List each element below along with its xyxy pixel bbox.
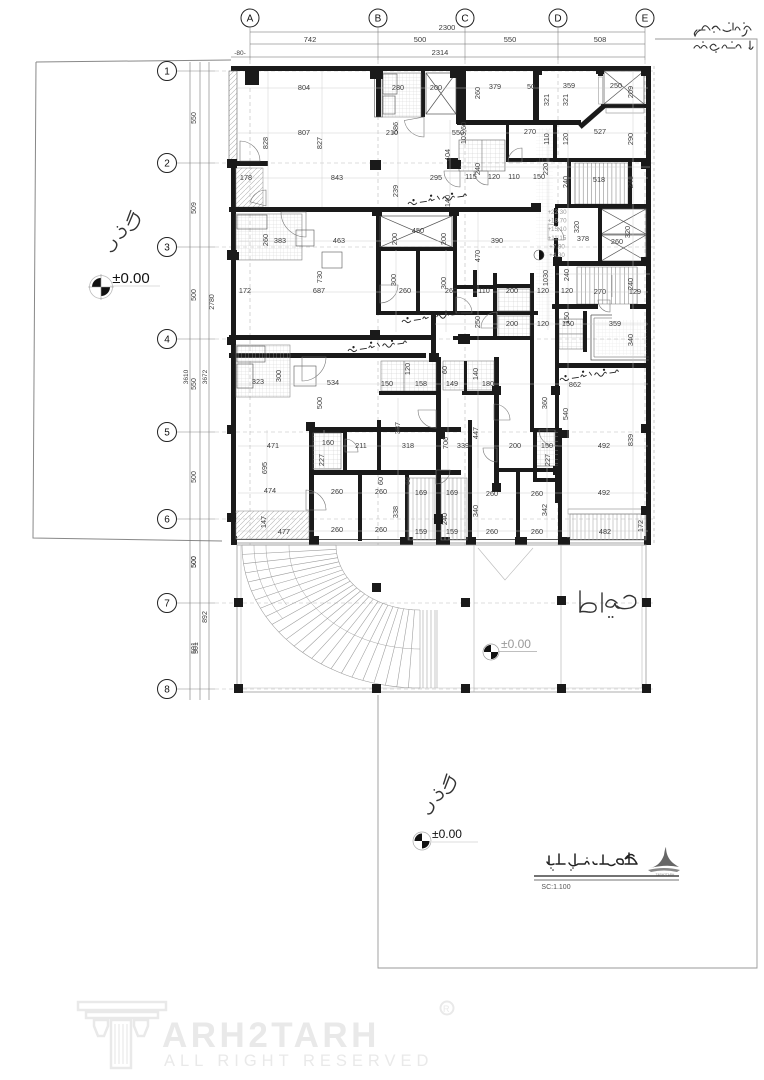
svg-text:260: 260 (331, 487, 343, 496)
svg-text:110: 110 (478, 286, 490, 295)
svg-text:260: 260 (531, 527, 543, 536)
svg-text:+18.70: +18.70 (547, 218, 567, 225)
svg-text:+22.30: +22.30 (547, 209, 567, 216)
svg-text:300: 300 (439, 277, 448, 289)
svg-text:492: 492 (598, 441, 610, 450)
svg-text:159: 159 (415, 527, 427, 536)
svg-text:2780: 2780 (209, 294, 216, 310)
svg-text:240: 240 (440, 513, 449, 525)
svg-text:D: D (554, 14, 561, 25)
svg-text:±0.00: ±0.00 (112, 270, 149, 287)
svg-text:742: 742 (304, 35, 317, 44)
svg-text:540: 540 (561, 408, 570, 420)
svg-text:482: 482 (599, 527, 611, 536)
svg-text:471: 471 (267, 441, 279, 450)
svg-text:320: 320 (623, 226, 632, 238)
svg-text:586: 586 (391, 122, 400, 134)
svg-text:804: 804 (298, 83, 310, 92)
svg-text:158: 158 (415, 379, 427, 388)
svg-text:807: 807 (298, 128, 310, 137)
svg-text:150: 150 (562, 312, 571, 324)
svg-text:120: 120 (537, 319, 549, 328)
svg-text:7: 7 (164, 599, 170, 610)
svg-text:843: 843 (331, 173, 343, 182)
svg-text:270: 270 (524, 127, 536, 136)
svg-text:2314: 2314 (432, 48, 449, 57)
svg-text:323: 323 (252, 377, 264, 386)
svg-text:200: 200 (509, 441, 521, 450)
svg-text:492: 492 (598, 488, 610, 497)
svg-text:447: 447 (471, 427, 480, 439)
svg-text:260: 260 (531, 489, 543, 498)
svg-text:260: 260 (375, 525, 387, 534)
svg-text:300: 300 (389, 274, 398, 286)
svg-text:892: 892 (202, 611, 209, 623)
svg-text:509: 509 (191, 202, 198, 214)
svg-text:342: 342 (540, 504, 549, 516)
svg-text:200: 200 (439, 233, 448, 245)
svg-text:E: E (642, 14, 649, 25)
svg-text:60: 60 (440, 366, 449, 374)
svg-text:250: 250 (473, 316, 482, 328)
svg-text:3610: 3610 (183, 369, 190, 384)
svg-text:828: 828 (261, 137, 270, 149)
svg-text:240: 240 (626, 278, 635, 290)
svg-text:527: 527 (594, 127, 606, 136)
svg-text:120: 120 (561, 133, 570, 145)
svg-text:110: 110 (508, 172, 520, 181)
svg-text:±0.00: ±0.00 (432, 827, 462, 841)
svg-text:470: 470 (473, 250, 482, 262)
svg-text:209: 209 (626, 86, 635, 98)
svg-text:687: 687 (313, 286, 325, 295)
svg-text:150: 150 (381, 379, 393, 388)
svg-text:220: 220 (541, 163, 550, 175)
svg-text:339: 339 (457, 441, 469, 450)
svg-text:360: 360 (540, 397, 549, 409)
svg-text:-80-: -80- (234, 50, 246, 57)
svg-text:500: 500 (191, 556, 198, 568)
svg-text:200: 200 (430, 83, 442, 92)
svg-text:508: 508 (594, 35, 607, 44)
svg-text:120: 120 (488, 172, 500, 181)
svg-text:501: 501 (193, 642, 200, 654)
svg-text:378: 378 (577, 234, 589, 243)
svg-text:321: 321 (542, 94, 551, 106)
svg-text:159: 159 (446, 527, 458, 536)
svg-text:450: 450 (412, 226, 424, 235)
svg-text:60: 60 (376, 477, 385, 485)
svg-text:550: 550 (191, 112, 198, 124)
svg-text:2: 2 (164, 159, 170, 170)
svg-text:290: 290 (626, 133, 635, 145)
svg-text:500: 500 (191, 289, 198, 301)
svg-text:1: 1 (164, 67, 170, 78)
svg-text:359: 359 (563, 81, 575, 90)
svg-text:260: 260 (486, 527, 498, 536)
svg-text:3: 3 (164, 243, 170, 254)
svg-text:320: 320 (572, 221, 581, 233)
svg-text:160: 160 (322, 438, 334, 447)
svg-text:239: 239 (391, 185, 400, 197)
svg-text:295: 295 (430, 173, 442, 182)
svg-text:R: R (443, 1004, 450, 1014)
svg-text:50: 50 (527, 82, 535, 91)
svg-text:A: A (247, 14, 254, 25)
svg-text:260: 260 (399, 286, 411, 295)
svg-text:SC:1.100: SC:1.100 (541, 884, 570, 891)
svg-text:340: 340 (471, 505, 480, 517)
svg-text:3672: 3672 (202, 369, 209, 384)
svg-text:178: 178 (240, 173, 252, 182)
svg-text:550: 550 (191, 378, 198, 390)
svg-text:C: C (461, 14, 468, 25)
svg-text:4: 4 (164, 335, 170, 346)
svg-text:8: 8 (164, 685, 170, 696)
svg-text:321: 321 (561, 94, 570, 106)
svg-text:1030: 1030 (541, 270, 550, 286)
svg-text:695: 695 (260, 462, 269, 474)
svg-text:862: 862 (569, 380, 581, 389)
svg-text:ARH2TARH: ARH2TARH (162, 1016, 380, 1055)
svg-text:260: 260 (473, 87, 482, 99)
svg-text:534: 534 (327, 378, 339, 387)
svg-text:103,60: 103,60 (459, 122, 468, 144)
svg-text:250: 250 (610, 81, 622, 90)
svg-text:147: 147 (259, 516, 268, 528)
svg-text:240: 240 (626, 176, 635, 188)
svg-text:172: 172 (636, 520, 645, 532)
svg-text:270: 270 (594, 287, 606, 296)
svg-text:260: 260 (331, 525, 343, 534)
svg-text:120: 120 (537, 286, 549, 295)
svg-text:5: 5 (164, 428, 170, 439)
svg-text:474: 474 (264, 486, 276, 495)
svg-text:338: 338 (391, 506, 400, 518)
svg-text:706: 706 (441, 437, 450, 449)
svg-text:172: 172 (239, 286, 251, 295)
svg-text:260: 260 (611, 237, 623, 246)
svg-text:477: 477 (278, 527, 290, 536)
svg-text:383: 383 (274, 236, 286, 245)
svg-text:318: 318 (402, 441, 414, 450)
svg-text:B: B (375, 14, 382, 25)
svg-text:140: 140 (471, 368, 480, 380)
svg-text:260: 260 (375, 487, 387, 496)
svg-text:518: 518 (593, 175, 605, 184)
svg-text:500: 500 (191, 471, 198, 483)
svg-text:340: 340 (626, 334, 635, 346)
svg-text:+7.90: +7.90 (549, 243, 565, 250)
svg-text:169: 169 (415, 488, 427, 497)
svg-text:550: 550 (504, 35, 517, 44)
svg-text:500: 500 (414, 35, 427, 44)
svg-text:300: 300 (274, 370, 283, 382)
svg-text:390: 390 (491, 236, 503, 245)
svg-text:827: 827 (315, 137, 324, 149)
svg-text:169: 169 (446, 488, 458, 497)
svg-text:120: 120 (561, 286, 573, 295)
svg-text:180: 180 (482, 379, 494, 388)
svg-text:150: 150 (541, 441, 553, 450)
svg-text:2300: 2300 (439, 23, 456, 32)
svg-text:463: 463 (333, 236, 345, 245)
svg-text:60: 60 (403, 477, 412, 485)
svg-text:839: 839 (626, 434, 635, 446)
svg-text:500: 500 (315, 397, 324, 409)
svg-text:120: 120 (403, 363, 412, 375)
svg-text:200: 200 (506, 286, 518, 295)
svg-text:260: 260 (486, 489, 498, 498)
svg-text:227: 227 (317, 454, 326, 466)
svg-text:730: 730 (315, 271, 324, 283)
svg-text:404: 404 (443, 149, 452, 161)
svg-text:240: 240 (562, 269, 571, 281)
svg-text:6: 6 (164, 515, 170, 526)
svg-text:211: 211 (355, 441, 367, 450)
svg-text:280: 280 (392, 83, 404, 92)
svg-text:240: 240 (561, 176, 570, 188)
svg-text:227: 227 (543, 454, 552, 466)
svg-text:149: 149 (446, 379, 458, 388)
svg-text:387: 387 (393, 422, 402, 434)
svg-text:±0.00: ±0.00 (501, 637, 531, 651)
svg-text:260: 260 (261, 234, 270, 246)
svg-text:200: 200 (506, 319, 518, 328)
svg-text:240: 240 (473, 163, 482, 175)
svg-text:ALL RIGHT RESERVED: ALL RIGHT RESERVED (164, 1052, 433, 1070)
svg-text:200: 200 (390, 233, 399, 245)
svg-text:110: 110 (542, 133, 551, 145)
svg-text:379: 379 (489, 82, 501, 91)
svg-text:359: 359 (609, 319, 621, 328)
